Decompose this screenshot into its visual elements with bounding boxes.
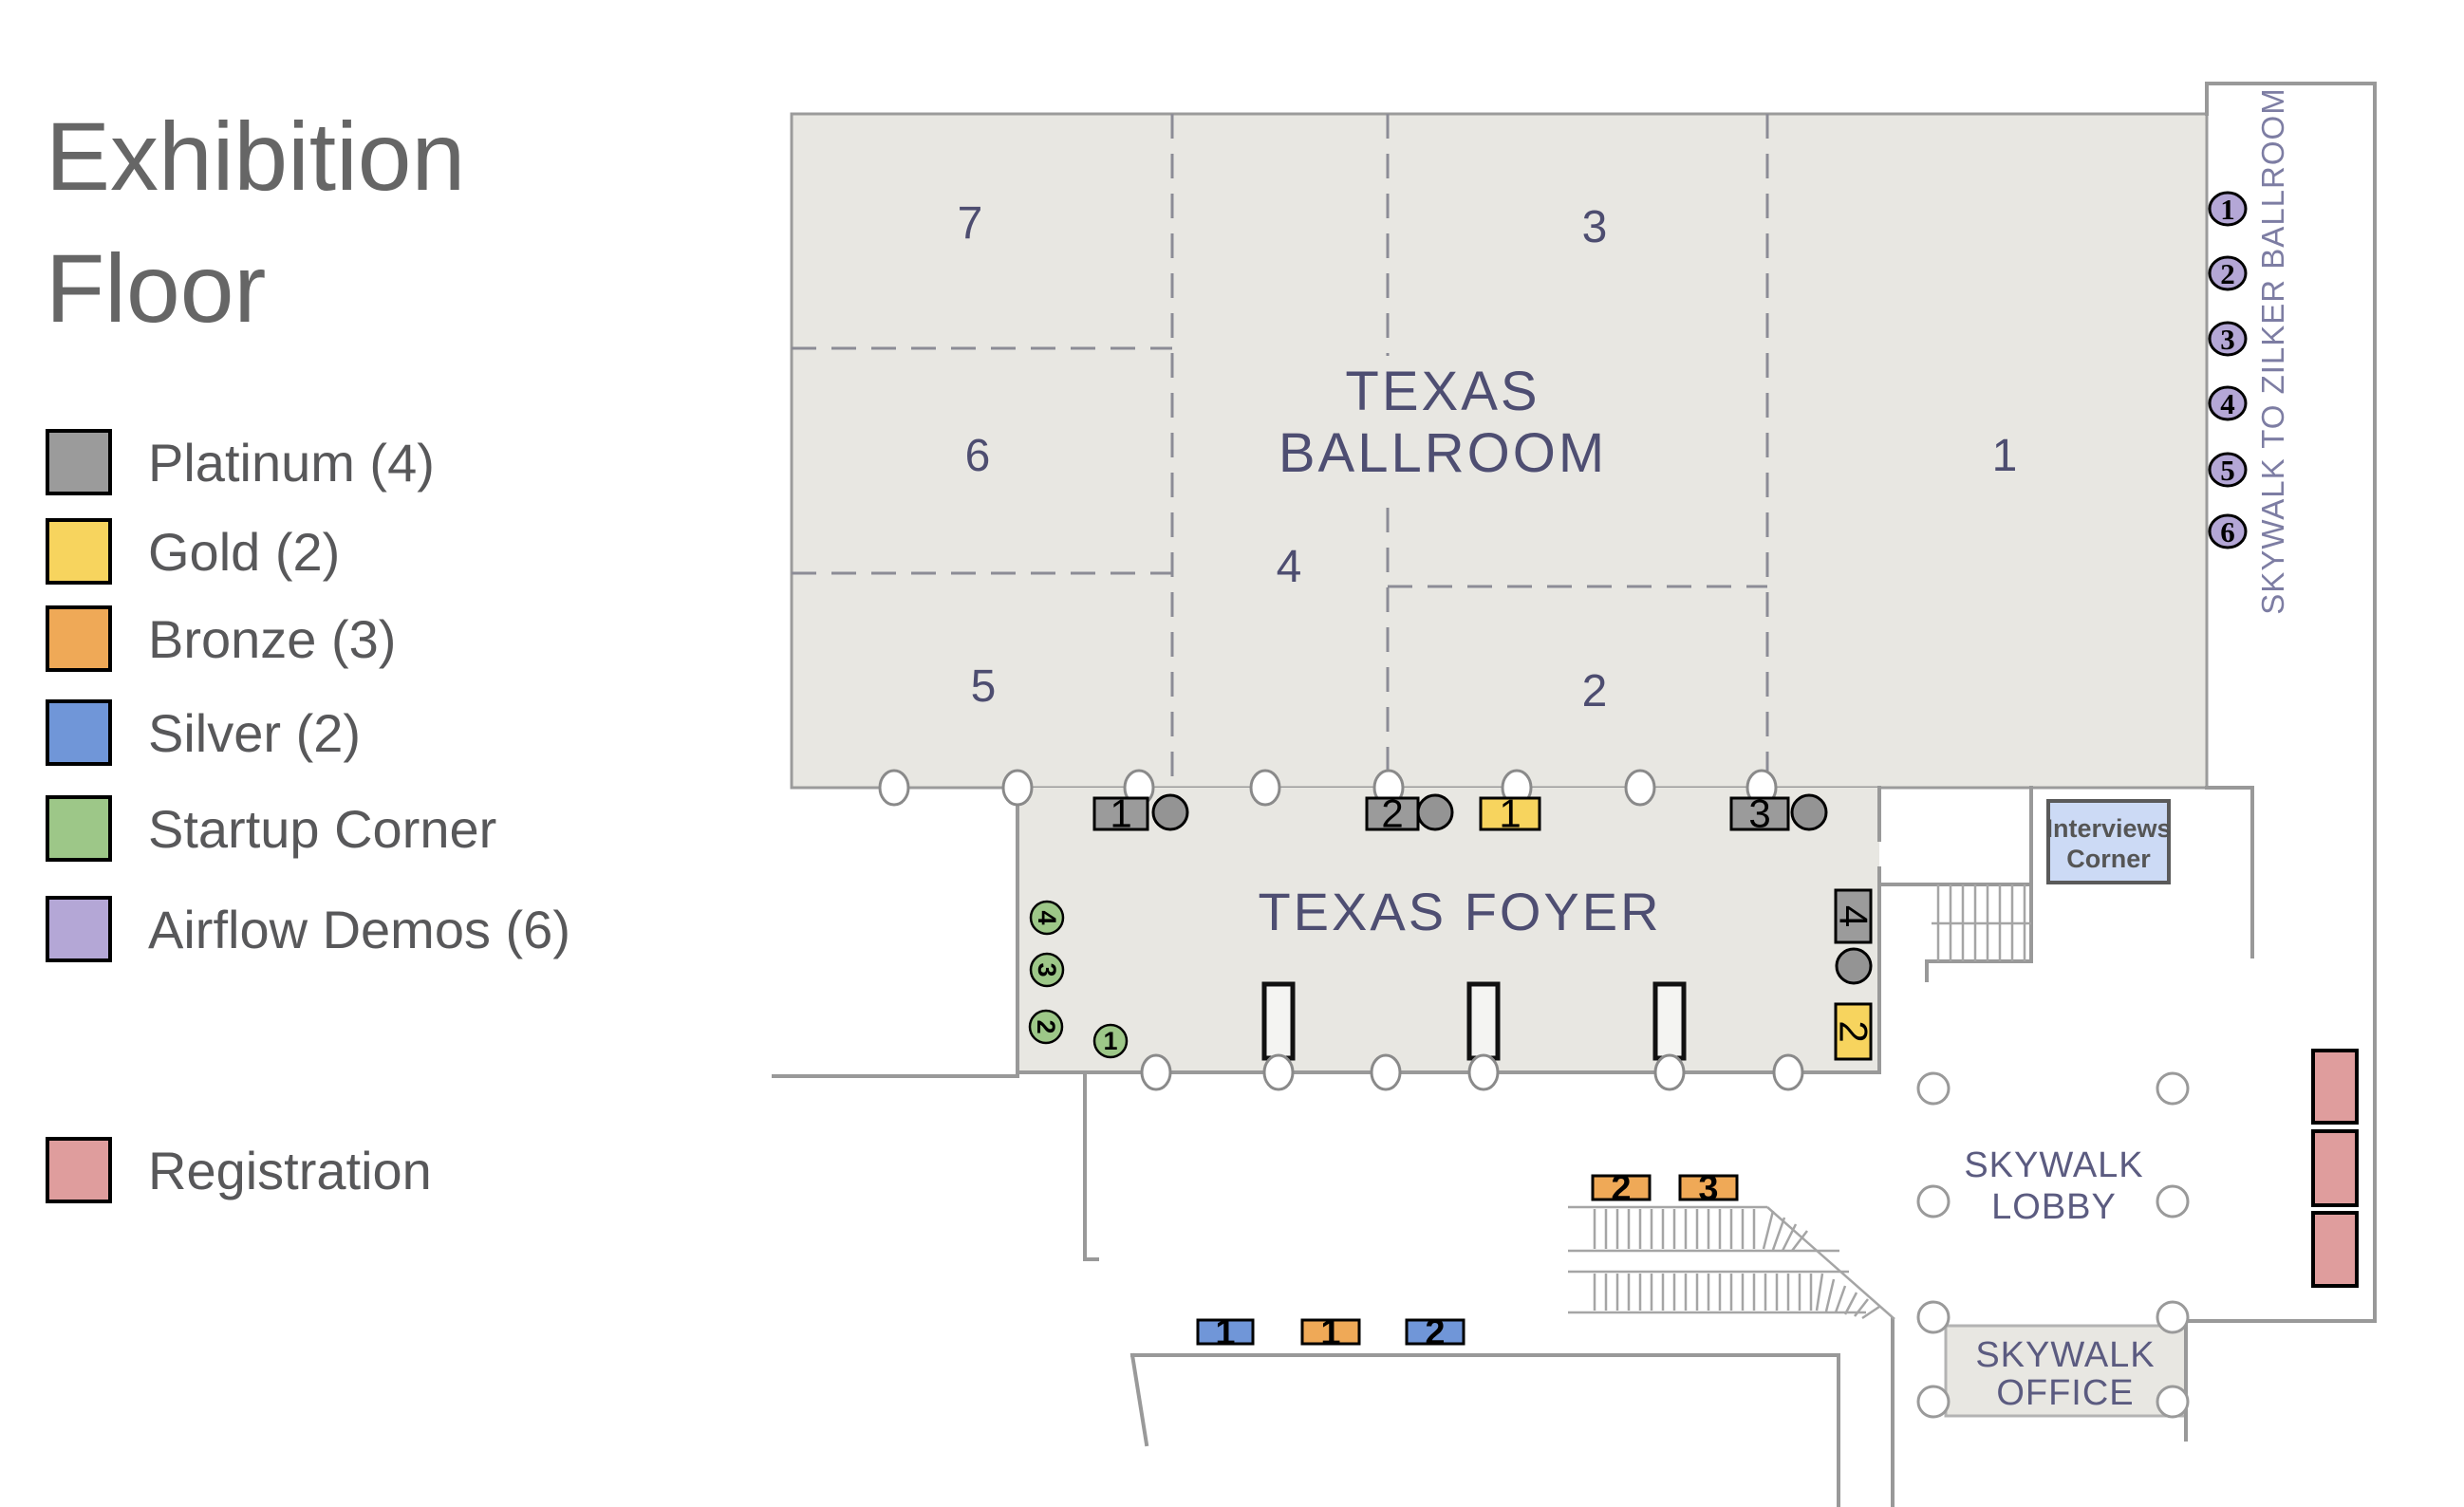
demo-spot-6-number: 6 [2220,515,2235,549]
startup-spot-4-number: 4 [1033,910,1061,924]
platinum-4-dot [1837,949,1871,983]
booth-bronze-2-number: 2 [1611,1169,1631,1209]
demo-spot-4-number: 4 [2220,387,2235,420]
door-icon [1372,1055,1400,1089]
upper-stairs [1932,884,2031,961]
skywalk-office-line1: SKYWALK [1975,1335,2155,1375]
startup-spot-2-number: 2 [1032,1019,1060,1033]
startup-spot-1-number: 1 [1103,1027,1117,1055]
floor-plan: 12134223112 4321 123456 InterviewsCorner… [0,0,2464,1507]
pillar [1655,984,1684,1058]
pillar [1264,984,1293,1058]
room-label-4: 4 [1277,542,1302,592]
booth-bronze-3-number: 3 [1698,1169,1718,1209]
registration-desk-1 [2313,1051,2357,1123]
demo-spot-1-number: 1 [2220,193,2235,226]
booth-platinum-3-number: 3 [1748,791,1770,836]
demo-spot-3-number: 3 [2220,323,2235,356]
startup-spot-3-number: 3 [1033,962,1061,977]
column-icon [1918,1186,1949,1217]
room-label-7: 7 [958,198,983,249]
room-label-5: 5 [971,661,997,712]
demo-spot-5-number: 5 [2220,454,2235,487]
skywalk-office-line2: OFFICE [1996,1373,2134,1413]
column-icon [1918,1386,1949,1417]
registration-desk-2 [2313,1131,2357,1205]
ballroom-title-line1: TEXAS [1345,361,1540,422]
column-icon [1918,1302,1949,1332]
door-icon [1251,771,1279,805]
skywalk-corridor-label: SKYWALK TO ZILKER BALLROOM [2255,87,2290,614]
room-label-2: 2 [1582,666,1608,716]
room-label-6: 6 [965,431,991,481]
booth-platinum-1-number: 1 [1110,791,1131,836]
skywalk-lobby-line2: LOBBY [1991,1187,2117,1227]
door-icon [1264,1055,1293,1089]
skywalk-lobby-line1: SKYWALK [1964,1145,2143,1185]
column-icon [1918,1073,1949,1104]
interviews-corner-label: Interviews [2045,814,2171,843]
exhibition-floor-page: { "title": "Exhibition Floor", "legend":… [0,0,2464,1507]
booth-silver-1-number: 1 [1215,1313,1235,1353]
booth-platinum-2-number: 2 [1381,791,1403,836]
door-icon [1626,771,1654,805]
room-label-3: 3 [1582,202,1608,252]
pillar [1469,984,1498,1058]
registration-desks [2313,1051,2357,1286]
airflow-demo-spots: 123456 [2210,193,2246,549]
booth-platinum-4-number: 4 [1832,905,1876,927]
registration-desk-3 [2313,1213,2357,1286]
interviews-corner-label: Corner [2066,845,2151,873]
booth-gold-1-number: 1 [1499,791,1521,836]
booth-silver-2-number: 2 [1425,1313,1445,1353]
column-icon [2157,1302,2188,1332]
demo-spot-2-number: 2 [2220,257,2235,290]
column-icon [2157,1073,2188,1104]
booth-bronze-1-number: 1 [1320,1313,1340,1353]
column-icon [2157,1186,2188,1217]
door-icon [1003,771,1032,805]
platinum-1-dot [1153,795,1187,829]
column-icon [2157,1386,2188,1417]
door-icon [1655,1055,1684,1089]
door-icon [1142,1055,1170,1089]
door-icon [1774,1055,1802,1089]
platinum-2-dot [1418,795,1452,829]
booth-gold-2-number: 2 [1832,1020,1876,1042]
door-icon [880,771,908,805]
foyer-title: TEXAS FOYER [1258,882,1661,941]
lower-stairs [1568,1207,1895,1319]
room-label-1: 1 [1992,431,2018,481]
door-icon [1469,1055,1498,1089]
platinum-3-dot [1792,795,1826,829]
ballroom-title-line2: BALLROOM [1279,422,1607,484]
interviews-corner: InterviewsCorner [2045,801,2171,883]
